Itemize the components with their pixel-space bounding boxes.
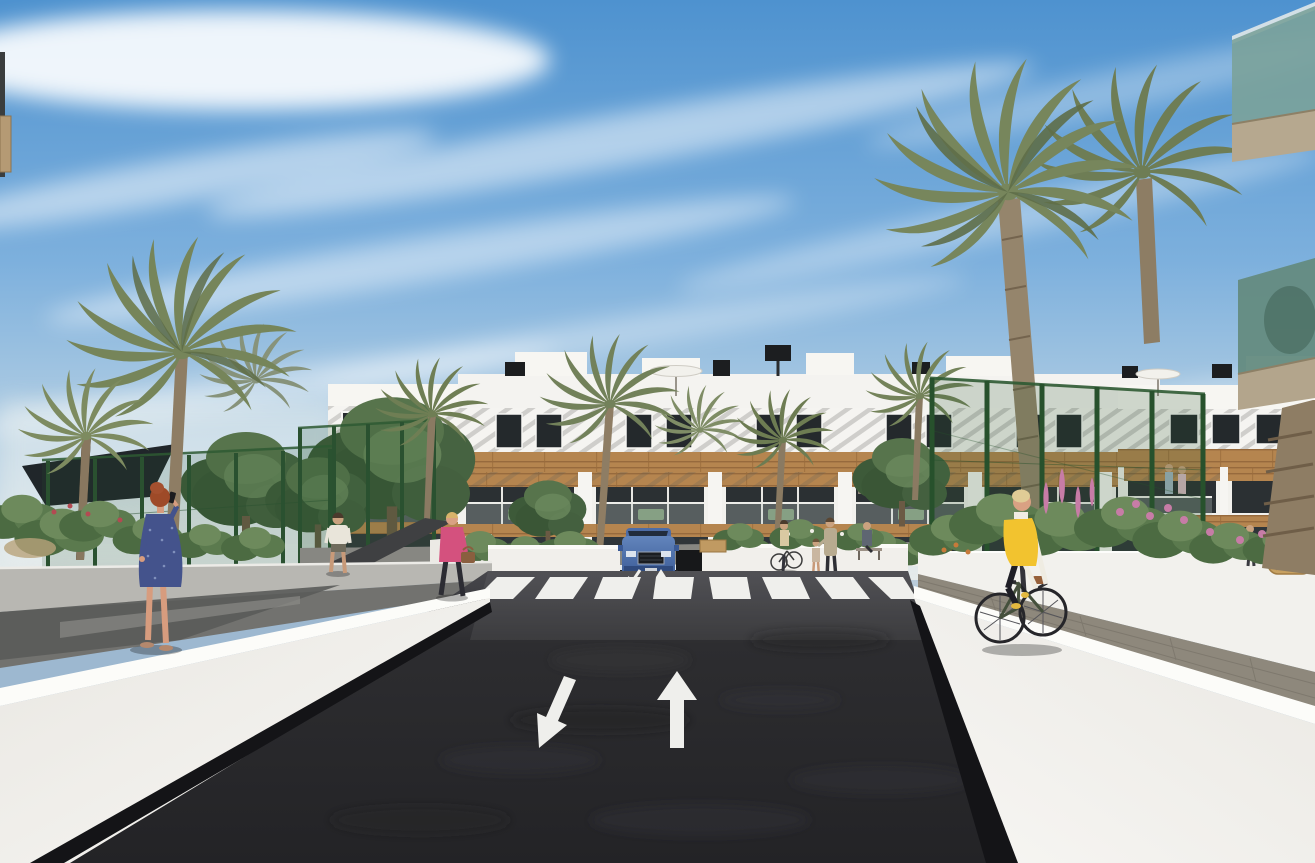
architectural-render — [0, 0, 1315, 863]
wood-bench — [700, 540, 726, 552]
glass-balcony-lower — [1238, 258, 1315, 410]
render-scene — [0, 0, 1315, 863]
